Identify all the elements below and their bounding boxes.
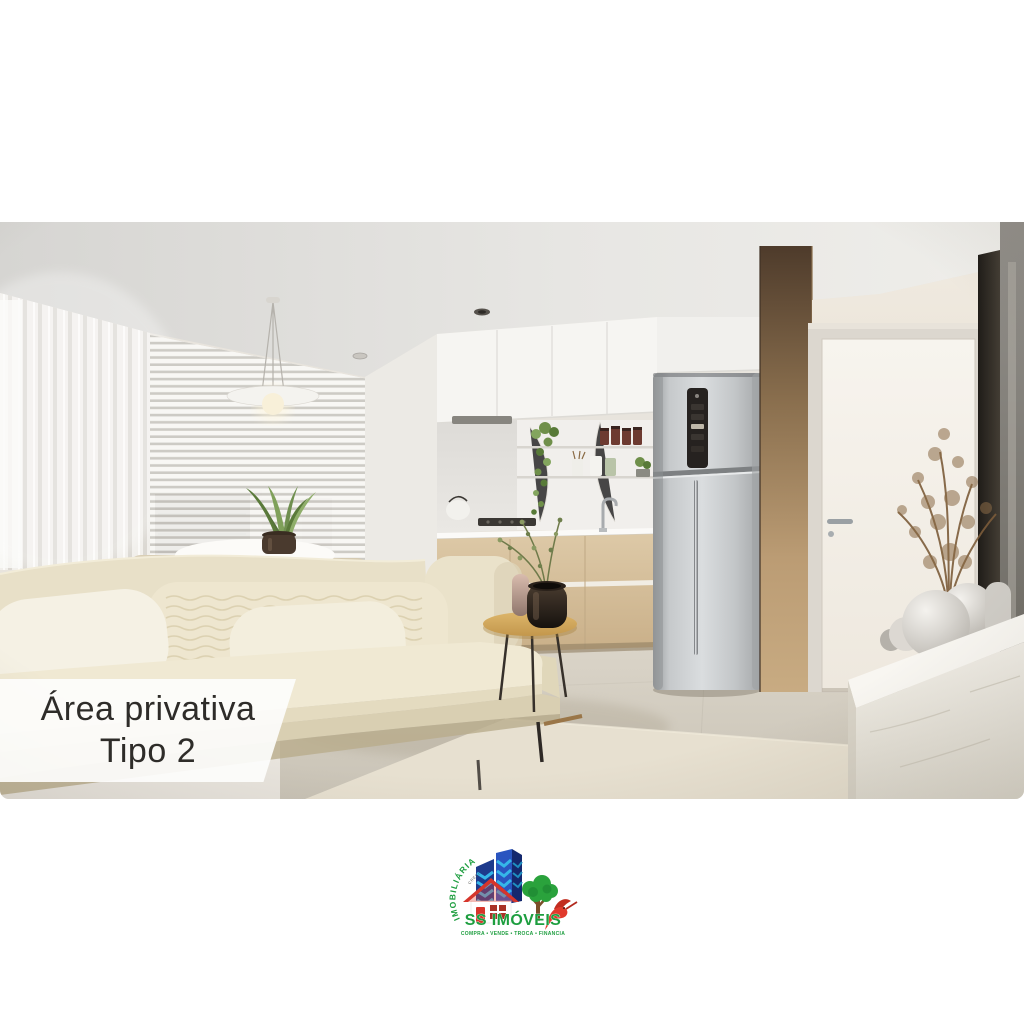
flyer-page: Área privativa Tipo 2 [0, 0, 1024, 1024]
logo-brand-text: SS IMÓVEIS [465, 910, 561, 929]
caption-line1: Área privativa [12, 689, 284, 730]
caption-badge: Área privativa Tipo 2 [0, 679, 296, 782]
logo-tagline: COMPRA • VENDE • TROCA • FINANCIA [461, 931, 565, 937]
agency-logo: IMOBILIÁRIA CRECI SS IMÓVEIS COMPRA • VE… [450, 845, 580, 942]
caption-line2: Tipo 2 [12, 731, 284, 772]
